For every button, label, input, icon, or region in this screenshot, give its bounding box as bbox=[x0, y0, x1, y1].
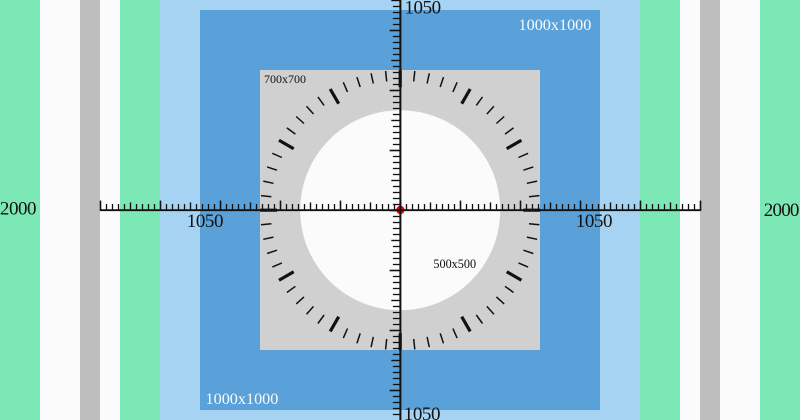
svg-text:1050: 1050 bbox=[576, 211, 612, 232]
svg-text:1050: 1050 bbox=[187, 211, 223, 232]
svg-text:500x500: 500x500 bbox=[433, 257, 476, 271]
svg-text:2000: 2000 bbox=[0, 198, 36, 219]
svg-text:2000: 2000 bbox=[764, 200, 799, 221]
svg-text:1050: 1050 bbox=[404, 404, 440, 420]
svg-text:1050: 1050 bbox=[405, 0, 441, 19]
svg-text:1000x1000: 1000x1000 bbox=[519, 16, 592, 34]
svg-text:1000x1000: 1000x1000 bbox=[206, 390, 279, 408]
svg-text:700x700: 700x700 bbox=[264, 72, 306, 86]
